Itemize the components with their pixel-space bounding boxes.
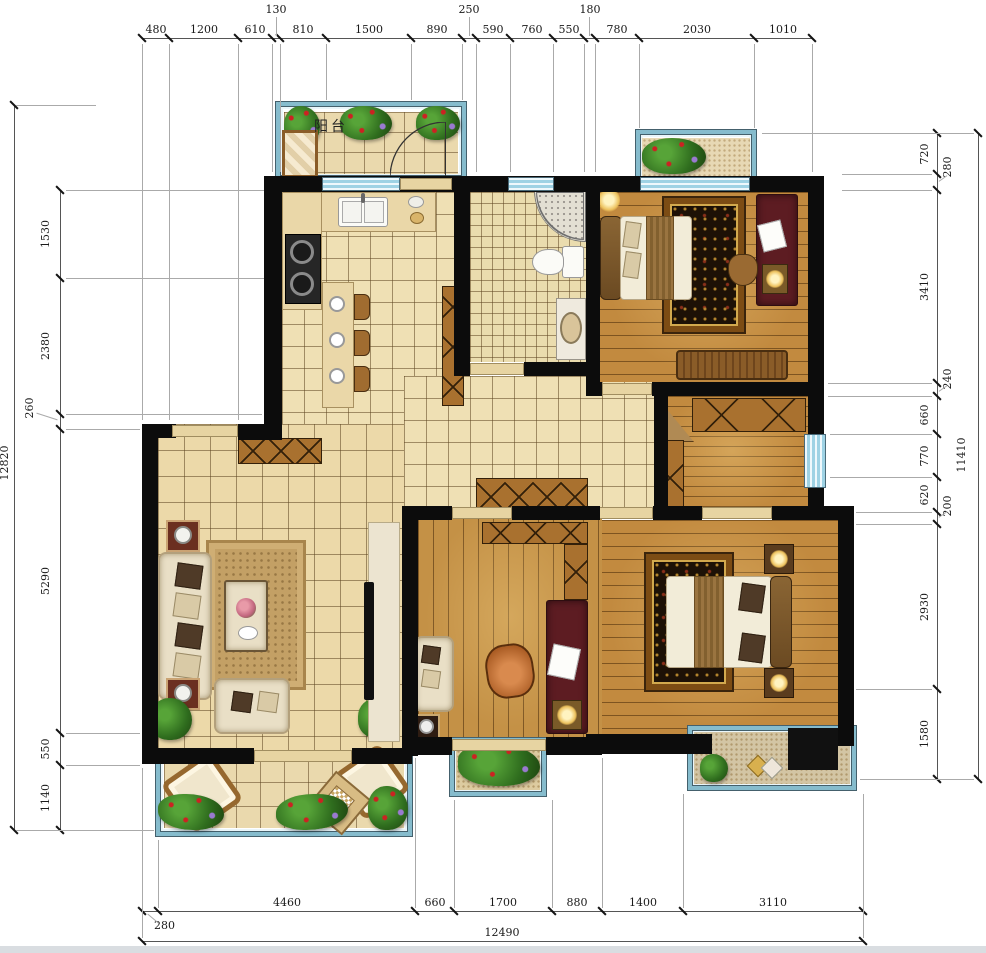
dim-line-bottom-overall <box>142 941 863 942</box>
study-desk-lamp-glow <box>557 705 577 725</box>
wall-bath-bottom-1 <box>454 362 470 376</box>
entry-door-leaf <box>445 122 446 178</box>
leader <box>589 17 590 36</box>
bedroom2-pillow-2 <box>738 632 766 663</box>
ext <box>602 758 603 908</box>
ext <box>830 434 932 435</box>
wall-bedroom1-bottom-2 <box>652 382 824 396</box>
wall-living-left <box>142 424 158 764</box>
kitchen-sink-bowl-1 <box>342 201 362 223</box>
ext <box>828 396 932 397</box>
leader <box>36 413 57 421</box>
wall-bed2-bottom <box>586 734 712 754</box>
wall-kitchen-left <box>264 176 282 428</box>
tv <box>364 582 374 700</box>
ext <box>411 44 412 100</box>
dim-bottom-0: 280 <box>146 920 190 932</box>
dim-left-2: 260 <box>24 386 36 430</box>
ext <box>272 44 273 172</box>
kitchen-dish-2 <box>408 196 424 208</box>
dim-top-5: 1500 <box>347 24 391 36</box>
leader <box>469 17 470 36</box>
ext <box>856 689 932 690</box>
loveseat-pillow-1 <box>231 691 254 714</box>
entry-shoe-cabinet <box>238 438 322 464</box>
bedroom1-headboard <box>600 216 622 300</box>
bedroom2-balcony-opening <box>788 728 838 770</box>
toilet-tank <box>562 246 584 278</box>
dim-right-2: 3410 <box>919 265 931 309</box>
wall-living-bottom-1 <box>142 748 254 764</box>
dining-plate-3 <box>329 368 345 384</box>
study-wardrobe-right <box>564 544 588 600</box>
wall-bed2-right <box>838 506 854 746</box>
bedroom1-chair <box>728 254 758 286</box>
ext <box>856 512 932 513</box>
window-bath <box>508 177 554 191</box>
closet-bed2-threshold <box>702 507 772 519</box>
living-balcony-threshold <box>254 750 352 762</box>
dim-top-4: 810 <box>281 24 325 36</box>
ext <box>454 800 455 908</box>
dim-right-0: 720 <box>919 132 931 176</box>
living-sofa-pillow-4 <box>172 652 201 679</box>
dim-top-10: 550 <box>547 24 591 36</box>
dim-top-6: 890 <box>415 24 459 36</box>
coffee-table-flowers <box>236 598 256 618</box>
dim-line-right <box>937 133 938 779</box>
ext <box>66 765 140 766</box>
bedroom1-door-threshold <box>602 383 652 395</box>
ext <box>158 840 159 908</box>
coffee-table-tray <box>238 626 258 640</box>
bedroom2-headboard <box>770 576 792 668</box>
ext <box>462 44 463 100</box>
dim-top-7: 250 <box>447 4 491 16</box>
ext <box>66 278 264 279</box>
wall-bed2-top-2 <box>772 506 838 520</box>
mirror-frame <box>282 130 318 178</box>
dim-line-right-overall <box>978 133 979 779</box>
loveseat-pillow-2 <box>257 691 280 714</box>
dim-right-5: 770 <box>919 434 931 478</box>
dining-chair-1 <box>354 294 370 320</box>
wall-bath-right <box>586 176 600 382</box>
bedroom1-bench <box>676 350 788 380</box>
dim-right-7: 200 <box>942 484 954 528</box>
ext <box>326 44 327 100</box>
living-balcony-plant-3 <box>368 786 408 830</box>
wall-study-bottom-1 <box>418 737 452 755</box>
ext <box>142 768 143 938</box>
dim-right-3: 240 <box>942 357 954 401</box>
dim-left-0: 1530 <box>40 212 52 256</box>
ext <box>828 383 932 384</box>
ext <box>762 133 974 134</box>
living-sofa-pillow-1 <box>174 562 203 589</box>
ext <box>856 524 932 525</box>
entry-threshold-left <box>172 425 238 437</box>
bedroom2-balcony-plant <box>700 754 728 782</box>
wall-closet-left <box>654 396 668 506</box>
dim-top-8: 590 <box>471 24 515 36</box>
ext <box>66 733 140 734</box>
dim-left-5: 1140 <box>40 776 52 820</box>
dim-left-overall: 12820 <box>0 441 11 485</box>
ext <box>142 44 143 420</box>
window-closet <box>804 434 826 488</box>
study-door-threshold <box>452 507 512 519</box>
living-sofa-pillow-3 <box>174 622 203 649</box>
dim-top-13: 2030 <box>675 24 719 36</box>
dim-line-left-overall <box>14 105 15 830</box>
dim-top-2: 610 <box>233 24 277 36</box>
ext <box>863 794 864 938</box>
wall-bedroom1-bottom-1 <box>586 382 602 396</box>
window-bedroom1-balcony <box>640 177 750 191</box>
wall-study-top-1 <box>418 506 452 520</box>
ext <box>66 414 262 415</box>
dim-left-3: 5290 <box>40 559 52 603</box>
dim-right-overall: 11410 <box>956 433 968 477</box>
dim-bottom-6: 3110 <box>751 897 795 909</box>
study-wardrobe-top <box>482 522 588 544</box>
bedroom1-desk-lamp-glow <box>766 270 784 288</box>
bedroom2-blanket <box>694 576 724 668</box>
study-side-table-plate <box>419 719 434 734</box>
dim-bottom-overall: 12490 <box>480 927 524 939</box>
dining-chair-3 <box>354 366 370 392</box>
bedroom2-lamp-glow-1 <box>770 550 788 568</box>
bath-door-threshold <box>470 363 524 375</box>
dim-bottom-4: 880 <box>555 897 599 909</box>
ext <box>860 779 974 780</box>
kitchen-sink-bowl-2 <box>364 201 384 223</box>
dim-right-9: 1580 <box>919 712 931 756</box>
ext <box>238 44 239 420</box>
entry-door-arc <box>390 122 448 180</box>
wall-bath-left <box>454 176 470 376</box>
dim-left-1: 2380 <box>40 324 52 368</box>
leader <box>276 17 277 36</box>
ext <box>510 44 511 172</box>
living-end-table-plate-1 <box>174 526 192 544</box>
floor-plan-canvas: 阳台 <box>0 0 986 953</box>
bedroom2-pillow-1 <box>738 582 766 613</box>
ext <box>683 794 684 908</box>
bath-sink-basin <box>560 312 582 344</box>
wall-tv <box>402 506 418 756</box>
ext <box>842 190 932 191</box>
ext <box>639 44 640 128</box>
dim-bottom-1: 4460 <box>265 897 309 909</box>
dim-top-14: 1010 <box>761 24 805 36</box>
wall-bed2-top-1 <box>653 506 702 520</box>
study-balcony-threshold <box>452 739 546 751</box>
bedroom2-lamp-glow-2 <box>770 674 788 692</box>
dim-top-3: 130 <box>254 4 298 16</box>
study-sofa-pillow-1 <box>421 645 441 665</box>
ext <box>16 105 96 106</box>
ext <box>553 44 554 172</box>
balcony-label: 阳台 <box>314 116 348 136</box>
ext <box>830 477 932 478</box>
stove-burner-2 <box>290 272 314 296</box>
ext <box>595 44 596 172</box>
window-kitchen <box>322 177 400 191</box>
dining-plate-2 <box>329 332 345 348</box>
kitchen-faucet <box>361 193 365 203</box>
stove-burner-1 <box>290 240 314 264</box>
ext <box>280 44 281 172</box>
loveseat <box>214 678 290 734</box>
dim-top-11: 180 <box>568 4 612 16</box>
ext <box>66 429 140 430</box>
ext <box>415 758 416 908</box>
wall-join <box>238 424 282 440</box>
living-sofa-pillow-2 <box>172 592 201 619</box>
bottom-edge-strip <box>0 946 986 953</box>
bedroom1-balcony-plant <box>642 138 706 174</box>
dim-right-8: 2930 <box>919 585 931 629</box>
dim-top-1: 1200 <box>182 24 226 36</box>
ext <box>476 44 477 172</box>
dim-right-4: 660 <box>919 393 931 437</box>
dim-top-12: 780 <box>595 24 639 36</box>
dim-bottom-2: 660 <box>413 897 457 909</box>
ext <box>584 44 585 172</box>
wall-bedroom1-right <box>808 176 824 396</box>
wall-study-top-2 <box>512 506 600 520</box>
toilet-bowl <box>532 249 564 275</box>
dining-chair-2 <box>354 330 370 356</box>
bedroom1-blanket <box>646 216 674 300</box>
kitchen-dish-3 <box>410 212 424 224</box>
ext <box>169 44 170 420</box>
dim-top-0: 480 <box>134 24 178 36</box>
study-sofa-pillow-2 <box>421 669 441 689</box>
dining-plate-1 <box>329 296 345 312</box>
closet-wardrobe-top <box>692 398 806 432</box>
ext <box>812 44 813 172</box>
ext <box>552 800 553 908</box>
dim-right-1: 280 <box>942 145 954 189</box>
entry-door-gap <box>400 178 452 190</box>
dim-bottom-3: 1700 <box>481 897 525 909</box>
ext <box>66 190 264 191</box>
ext <box>842 174 932 175</box>
dim-bottom-5: 1400 <box>621 897 665 909</box>
dim-right-6: 620 <box>919 473 931 517</box>
ext <box>754 44 755 128</box>
dim-line-bottom <box>142 911 863 912</box>
ext <box>16 830 154 831</box>
dim-left-4: 550 <box>40 727 52 771</box>
